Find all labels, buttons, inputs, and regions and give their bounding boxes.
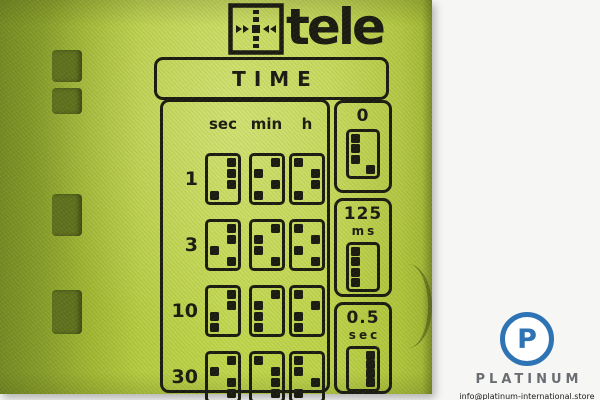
switch-lever (271, 257, 280, 266)
switch-position (350, 247, 376, 256)
dip-switch-icon-10-sec (205, 285, 241, 337)
switch-lever (271, 158, 280, 167)
switch-lever (227, 180, 236, 189)
table-row-x10: 10 (163, 278, 327, 344)
switch-position (293, 235, 321, 244)
din-rail-tab (52, 290, 82, 334)
timer-relay-front-panel: tele TIME secminh 131030 0125ms0.5sec (0, 0, 432, 394)
dip-switch-icon-3-sec (205, 219, 241, 271)
switch-lever (271, 224, 280, 233)
dip-switch-icon-30-sec (205, 351, 241, 400)
option-value: 0 (357, 107, 370, 126)
switch-position (350, 378, 376, 387)
column-header-sec: sec (201, 115, 245, 133)
switch-position (293, 290, 321, 299)
column-header-h: h (288, 115, 326, 133)
switch-lever (294, 367, 303, 376)
switch-position (350, 369, 376, 378)
base-time-column: 0125ms0.5sec (334, 100, 392, 394)
switch-position (209, 235, 237, 244)
switch-lever (366, 360, 375, 369)
switch-position (253, 246, 281, 255)
switch-lever (254, 323, 263, 332)
switch-lever (227, 301, 236, 310)
switch-lever (271, 180, 280, 189)
option-unit: ms (349, 224, 378, 239)
switch-position (253, 389, 281, 398)
switch-position (253, 191, 281, 200)
switch-lever (271, 389, 280, 398)
dip-switch-icon-1-min (249, 153, 285, 205)
switch-lever (254, 312, 263, 321)
multiplier-label: 3 (163, 234, 201, 256)
column-header-min: min (245, 115, 288, 133)
switch-lever (254, 191, 263, 200)
switch-position (293, 367, 321, 376)
switch-position (293, 257, 321, 266)
switch-position (293, 312, 321, 321)
switch-lever (351, 268, 360, 277)
switch-cell (288, 351, 326, 400)
switch-cell (245, 351, 288, 400)
base-time-option-0: 0 (334, 100, 392, 193)
switch-position (350, 134, 376, 143)
switch-cell (245, 285, 288, 337)
option-value: 0.5 (346, 309, 379, 328)
switch-position (253, 378, 281, 387)
switch-position (293, 301, 321, 310)
switch-cell (288, 219, 326, 271)
switch-position (253, 224, 281, 233)
switch-position (293, 224, 321, 233)
switch-position (293, 169, 321, 178)
switch-position (350, 257, 376, 266)
switch-position (209, 257, 237, 266)
switch-lever (351, 155, 360, 164)
dip-switch-icon-1-sec (205, 153, 241, 205)
dip-switch-icon-10-min (249, 285, 285, 337)
watermark-name: PLATINUM (452, 372, 600, 387)
switch-lever (366, 165, 375, 174)
switch-lever (311, 301, 320, 310)
switch-position (293, 356, 321, 365)
switch-lever (227, 235, 236, 244)
switch-cell (288, 285, 326, 337)
switch-lever (227, 158, 236, 167)
switch-position (293, 158, 321, 167)
switch-position (209, 224, 237, 233)
table-row-x30: 30 (163, 344, 327, 400)
platinum-logo-icon: P (500, 312, 554, 366)
switch-lever (227, 257, 236, 266)
dip-switch-icon-3-h (289, 219, 325, 271)
switch-position (253, 356, 281, 365)
dip-switch-icon-0 (346, 129, 380, 179)
switch-lever (271, 290, 280, 299)
switch-lever (210, 312, 219, 321)
switch-lever (294, 290, 303, 299)
switch-cell (201, 351, 245, 400)
switch-position (253, 158, 281, 167)
switch-position (209, 301, 237, 310)
base-time-option-125: 125ms (334, 198, 392, 297)
switch-position (293, 323, 321, 332)
switch-cell (201, 153, 245, 205)
switch-lever (271, 367, 280, 376)
dip-switch-icon-30-min (249, 351, 285, 400)
dip-switch-icon-125 (346, 242, 380, 292)
switch-cell (201, 285, 245, 337)
switch-position (350, 351, 376, 360)
dip-switch-icon-3-min (249, 219, 285, 271)
product-photo: tele TIME secminh 131030 0125ms0.5sec P … (0, 0, 600, 400)
switch-position (253, 169, 281, 178)
switch-cell (201, 219, 245, 271)
switch-lever (294, 356, 303, 365)
switch-lever (294, 224, 303, 233)
table-header-row: secminh (163, 102, 327, 146)
multiplier-label: 30 (163, 366, 201, 388)
switch-position (253, 290, 281, 299)
switch-position (209, 158, 237, 167)
switch-position (293, 246, 321, 255)
switch-position (350, 268, 376, 277)
switch-lever (227, 224, 236, 233)
din-rail-tab (52, 194, 82, 236)
switch-position (253, 257, 281, 266)
switch-lever (351, 144, 360, 153)
switch-lever (294, 389, 303, 398)
table-body: 131030 (163, 146, 327, 400)
switch-lever (351, 257, 360, 266)
base-time-option-0_5: 0.5sec (334, 302, 392, 394)
switch-lever (311, 257, 320, 266)
switch-position (293, 389, 321, 398)
switch-lever (366, 351, 375, 360)
switch-position (209, 356, 237, 365)
switch-lever (366, 369, 375, 378)
multiplier-label: 10 (163, 300, 201, 322)
switch-position (253, 367, 281, 376)
switch-lever (227, 356, 236, 365)
switch-lever (294, 191, 303, 200)
time-multiplier-table: secminh 131030 (160, 99, 330, 393)
switch-lever (227, 389, 236, 398)
option-unit: sec (346, 328, 380, 343)
switch-lever (294, 158, 303, 167)
switch-lever (210, 367, 219, 376)
switch-position (253, 312, 281, 321)
switch-cell (288, 153, 326, 205)
switch-position (209, 191, 237, 200)
switch-position (350, 144, 376, 153)
switch-lever (351, 278, 360, 287)
switch-position (209, 378, 237, 387)
switch-lever (311, 235, 320, 244)
switch-lever (227, 290, 236, 299)
switch-lever (271, 378, 280, 387)
switch-lever (294, 323, 303, 332)
dip-switch-icon-30-h (289, 351, 325, 400)
switch-position (209, 323, 237, 332)
switch-position (209, 169, 237, 178)
switch-lever (254, 169, 263, 178)
switch-lever (254, 235, 263, 244)
switch-position (350, 278, 376, 287)
option-value: 125 (344, 205, 383, 224)
switch-position (209, 290, 237, 299)
switch-position (209, 312, 237, 321)
switch-position (209, 389, 237, 398)
switch-position (350, 360, 376, 369)
switch-position (253, 323, 281, 332)
table-row-x3: 3 (163, 212, 327, 278)
brand-name: tele (286, 3, 383, 51)
watermark-email: info@platinum-international.store (452, 392, 600, 400)
switch-lever (294, 312, 303, 321)
switch-lever (254, 301, 263, 310)
switch-cell (245, 153, 288, 205)
switch-lever (351, 134, 360, 143)
switch-cell (245, 219, 288, 271)
switch-lever (351, 247, 360, 256)
switch-position (209, 246, 237, 255)
switch-lever (210, 323, 219, 332)
switch-lever (227, 378, 236, 387)
switch-lever (210, 191, 219, 200)
switch-position (293, 191, 321, 200)
switch-lever (227, 169, 236, 178)
watermark: P PLATINUM info@platinum-international.s… (452, 312, 600, 400)
time-panel-title: TIME (154, 57, 389, 100)
dip-switch-icon-10-h (289, 285, 325, 337)
tele-logo-icon (228, 3, 284, 55)
time-panel-title-label: TIME (224, 67, 319, 91)
switch-lever (294, 246, 303, 255)
switch-position (293, 378, 321, 387)
switch-position (253, 301, 281, 310)
switch-position (293, 180, 321, 189)
switch-lever (311, 180, 320, 189)
switch-position (350, 165, 376, 174)
multiplier-label: 1 (163, 168, 201, 190)
switch-position (253, 235, 281, 244)
dip-switch-icon-0_5 (346, 346, 380, 392)
switch-position (253, 180, 281, 189)
switch-lever (210, 246, 219, 255)
switch-lever (366, 378, 375, 387)
switch-lever (254, 246, 263, 255)
switch-lever (311, 169, 320, 178)
switch-position (350, 155, 376, 164)
brand-logo: tele (228, 3, 383, 55)
switch-position (209, 180, 237, 189)
din-rail-tab (52, 88, 82, 114)
switch-lever (311, 378, 320, 387)
table-row-x1: 1 (163, 146, 327, 212)
switch-lever (254, 356, 263, 365)
dip-switch-icon-1-h (289, 153, 325, 205)
switch-position (209, 367, 237, 376)
din-rail-tab (52, 50, 82, 82)
